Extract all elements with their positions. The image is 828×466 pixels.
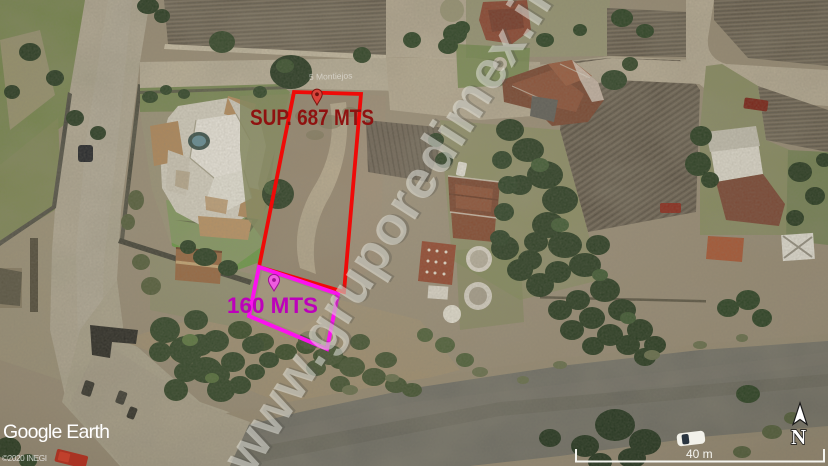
svg-text:©2020 INEGI: ©2020 INEGI [2,454,47,463]
svg-text:40 m: 40 m [686,447,713,461]
svg-text:Google Earth: Google Earth [3,421,110,443]
svg-text:SUP. 687 MTS: SUP. 687 MTS [250,105,374,130]
svg-text:N: N [791,425,806,449]
svg-text:5 Montiejos: 5 Montiejos [309,70,353,82]
